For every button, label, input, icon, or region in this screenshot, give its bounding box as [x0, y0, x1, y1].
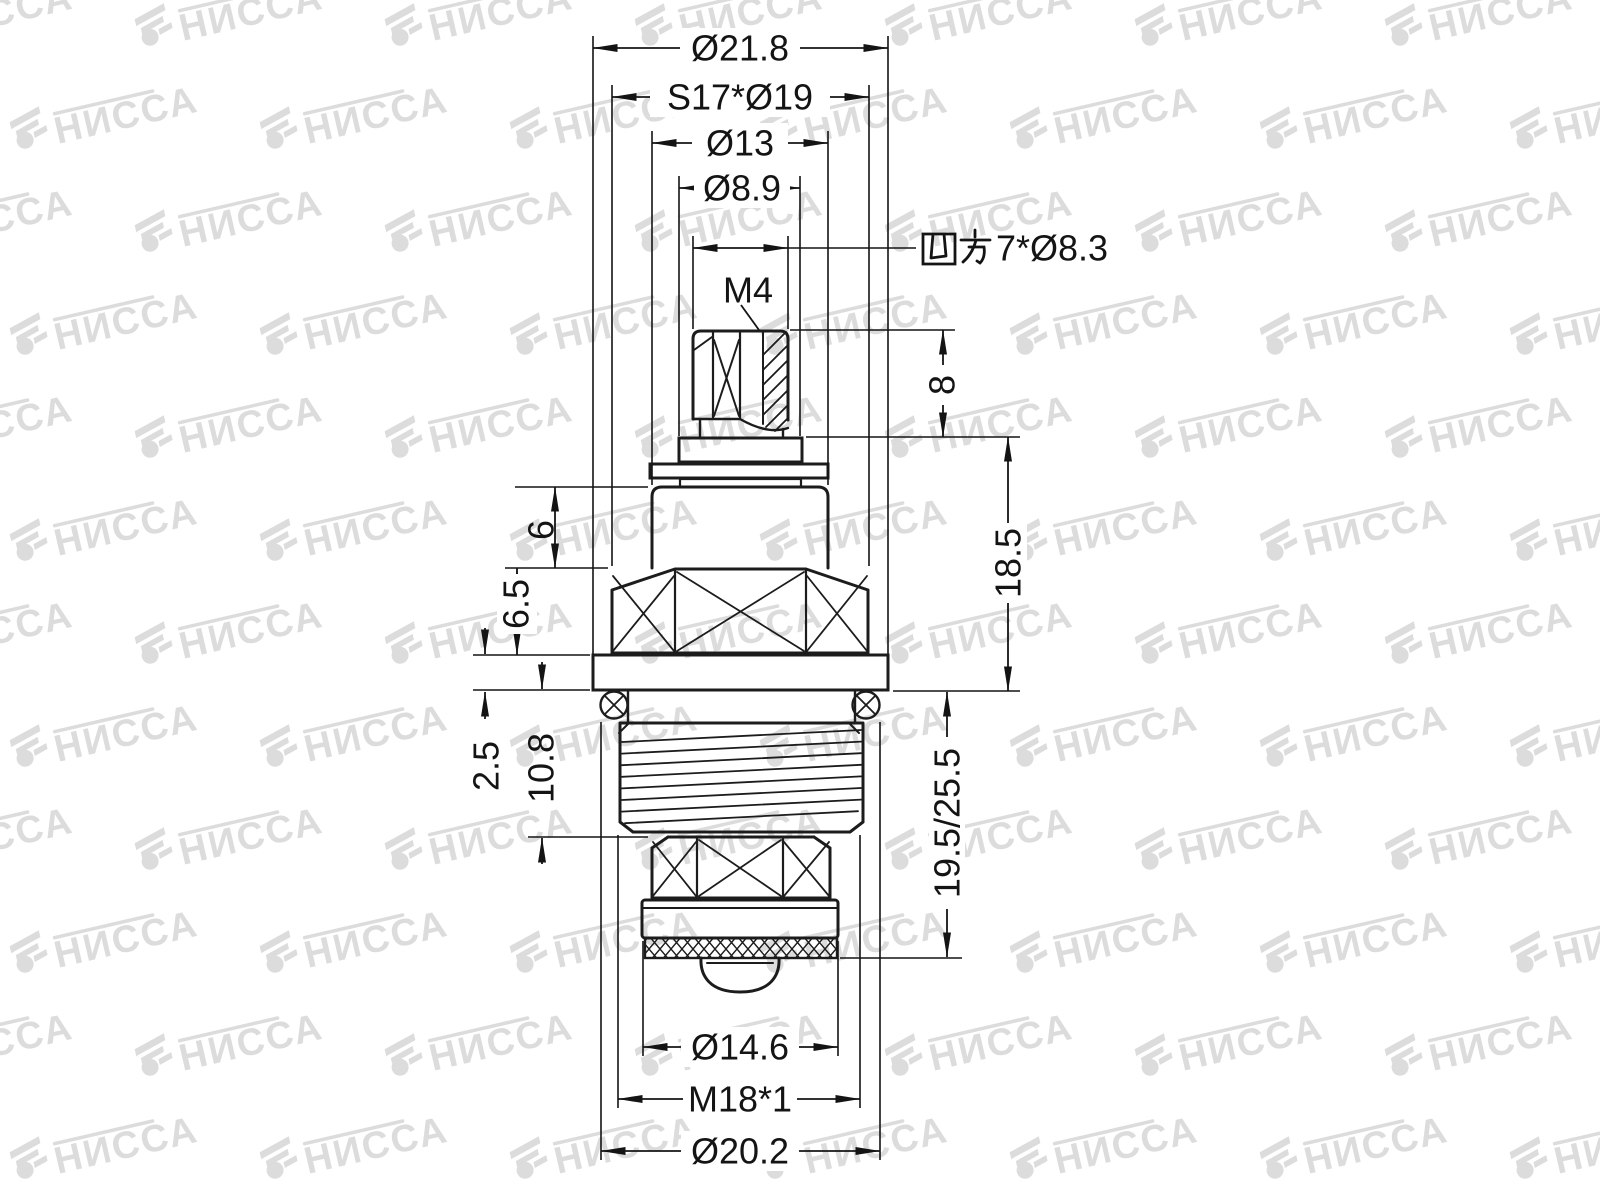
dim-dia-body: Ø13 — [706, 123, 774, 164]
watermark-instance — [1008, 1101, 1203, 1192]
watermark-instance — [1508, 689, 1600, 780]
watermark-instance — [383, 586, 578, 677]
watermark-instance — [883, 586, 1078, 677]
mounting-flange — [593, 655, 888, 690]
watermark-instance — [1508, 1101, 1600, 1192]
watermark-instance — [883, 998, 1078, 1089]
watermark-instance — [258, 277, 453, 368]
watermark-instance — [1508, 71, 1600, 162]
watermark-instance — [133, 586, 328, 677]
watermark-instance — [508, 277, 703, 368]
watermark-instance — [883, 792, 1078, 883]
dim-thread-spec: M18*1 — [688, 1079, 792, 1120]
dim-flange-thickness: 2.5 — [466, 741, 507, 791]
watermark-instance — [1258, 277, 1453, 368]
watermark-instance — [0, 998, 77, 1089]
watermark-instance — [383, 174, 578, 265]
watermark-instance — [0, 792, 77, 883]
watermark-instance — [758, 483, 953, 574]
watermark-instance — [258, 895, 453, 986]
watermark-instance — [258, 1101, 453, 1192]
watermark-instance — [8, 895, 203, 986]
watermark-instance — [1383, 174, 1578, 265]
watermark-instance — [1133, 380, 1328, 471]
watermark-instance — [133, 792, 328, 883]
watermark-instance — [133, 174, 328, 265]
watermark-instance — [8, 277, 203, 368]
watermark-instance — [1508, 895, 1600, 986]
watermark-instance — [1383, 380, 1578, 471]
dim-dia-seat: Ø14.6 — [691, 1027, 789, 1068]
watermark-instance — [0, 0, 77, 59]
watermark-instance — [1008, 895, 1203, 986]
dim-hex-flats-spec: S17*Ø19 — [667, 77, 813, 118]
watermark-instance — [8, 71, 203, 162]
dim-dia-orings: Ø20.2 — [691, 1131, 789, 1172]
svg-text:7*Ø8.3: 7*Ø8.3 — [996, 228, 1108, 269]
dim-body-height: 6 — [521, 520, 562, 540]
watermark-instance — [1133, 0, 1328, 59]
watermark-instance — [1383, 0, 1578, 59]
watermark-instance — [1508, 483, 1600, 574]
watermark-instance — [383, 998, 578, 1089]
watermark-instance — [1383, 792, 1578, 883]
seal-dome — [701, 958, 779, 992]
watermark-instance — [258, 483, 453, 574]
watermark-instance — [633, 586, 828, 677]
dim-stem-height: 8 — [922, 375, 963, 395]
watermark-instance — [1258, 71, 1453, 162]
watermark-instance — [0, 174, 77, 265]
knurled-ring — [645, 938, 837, 958]
watermark-instance — [258, 71, 453, 162]
watermark-instance — [1133, 174, 1328, 265]
watermark-instance — [1258, 483, 1453, 574]
watermark-instance — [133, 380, 328, 471]
dim-dia-top-flange: Ø21.8 — [691, 28, 789, 69]
watermark-instance — [8, 483, 203, 574]
watermark-instance — [883, 380, 1078, 471]
watermark-instance — [1008, 483, 1203, 574]
watermark-instance — [1008, 689, 1203, 780]
dim-m4-label: M4 — [723, 270, 773, 311]
dim-lower-height: 19.5/25.5 — [927, 748, 968, 898]
watermark-instance — [508, 1101, 703, 1192]
watermark-instance — [383, 0, 578, 59]
watermark-instance — [633, 380, 828, 471]
watermark-instance — [1383, 586, 1578, 677]
watermark-instance — [1383, 998, 1578, 1089]
watermark-instance — [1258, 1101, 1453, 1192]
dim-hex-height: 6.5 — [496, 579, 537, 629]
dim-dia-collar: Ø8.9 — [703, 168, 781, 209]
watermark-instance — [1133, 998, 1328, 1089]
watermark-instance — [133, 998, 328, 1089]
watermark-instance — [133, 0, 328, 59]
watermark-instance — [0, 586, 77, 677]
watermark-instance — [8, 689, 203, 780]
watermark-instance — [258, 689, 453, 780]
watermark-instance — [1133, 792, 1328, 883]
watermark-instance — [1133, 586, 1328, 677]
watermark-instance — [383, 380, 578, 471]
watermark-instance — [1008, 277, 1203, 368]
watermark-instance — [1008, 71, 1203, 162]
watermark-instance — [1508, 277, 1600, 368]
watermark-instance — [8, 1101, 203, 1192]
dim-upper-height: 18.5 — [988, 528, 1029, 598]
top-washer — [650, 464, 828, 478]
valve-cartridge-drawing: НИССА — [0, 0, 1600, 1200]
watermark-instance — [1258, 895, 1453, 986]
dim-thread-zone-height: 10.8 — [521, 733, 562, 803]
watermark-instance — [883, 0, 1078, 59]
watermark-instance — [0, 380, 77, 471]
watermark-instance — [1258, 689, 1453, 780]
